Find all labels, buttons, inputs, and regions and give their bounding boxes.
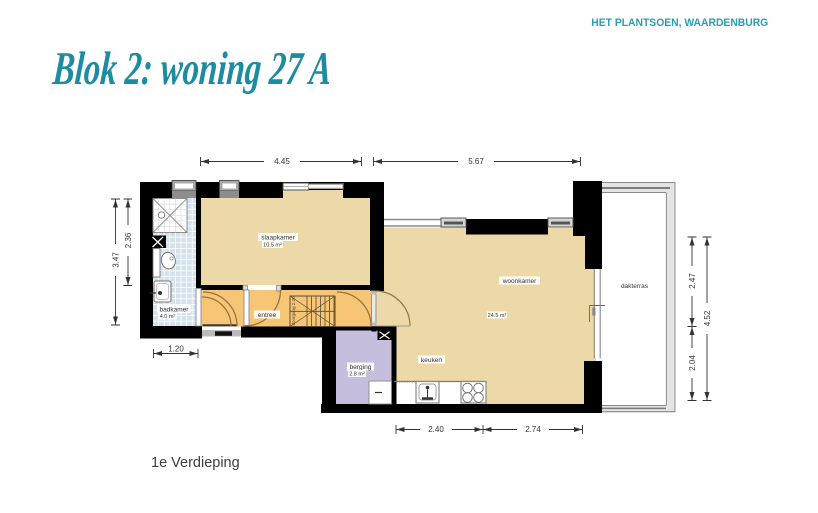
svg-text:4.52: 4.52 [703, 310, 712, 326]
svg-text:badkamer: badkamer [160, 307, 190, 314]
svg-text:10.5 m²: 10.5 m² [263, 243, 282, 249]
svg-text:2.8 m²: 2.8 m² [349, 372, 365, 378]
svg-text:slaapkamer: slaapkamer [261, 235, 295, 242]
svg-text:4.45: 4.45 [274, 157, 290, 166]
svg-text:dakterras: dakterras [621, 283, 649, 290]
svg-text:3.47: 3.47 [112, 252, 121, 268]
svg-text:2.74: 2.74 [525, 425, 541, 434]
svg-text:berging: berging [350, 364, 372, 371]
svg-text:entree: entree [258, 312, 277, 319]
svg-text:4.0 m²: 4.0 m² [160, 314, 176, 320]
svg-text:doorgang 2.30: doorgang 2.30 [291, 296, 296, 326]
svg-text:24.5 m²: 24.5 m² [488, 313, 507, 319]
svg-text:2.47: 2.47 [688, 273, 697, 289]
svg-text:5.67: 5.67 [468, 157, 484, 166]
svg-text:2.04: 2.04 [688, 355, 697, 371]
svg-text:1.20: 1.20 [168, 345, 184, 354]
svg-text:2.36: 2.36 [124, 232, 133, 248]
svg-text:keuken: keuken [421, 357, 442, 364]
svg-text:woonkamer: woonkamer [502, 278, 537, 285]
svg-text:2.40: 2.40 [428, 425, 444, 434]
